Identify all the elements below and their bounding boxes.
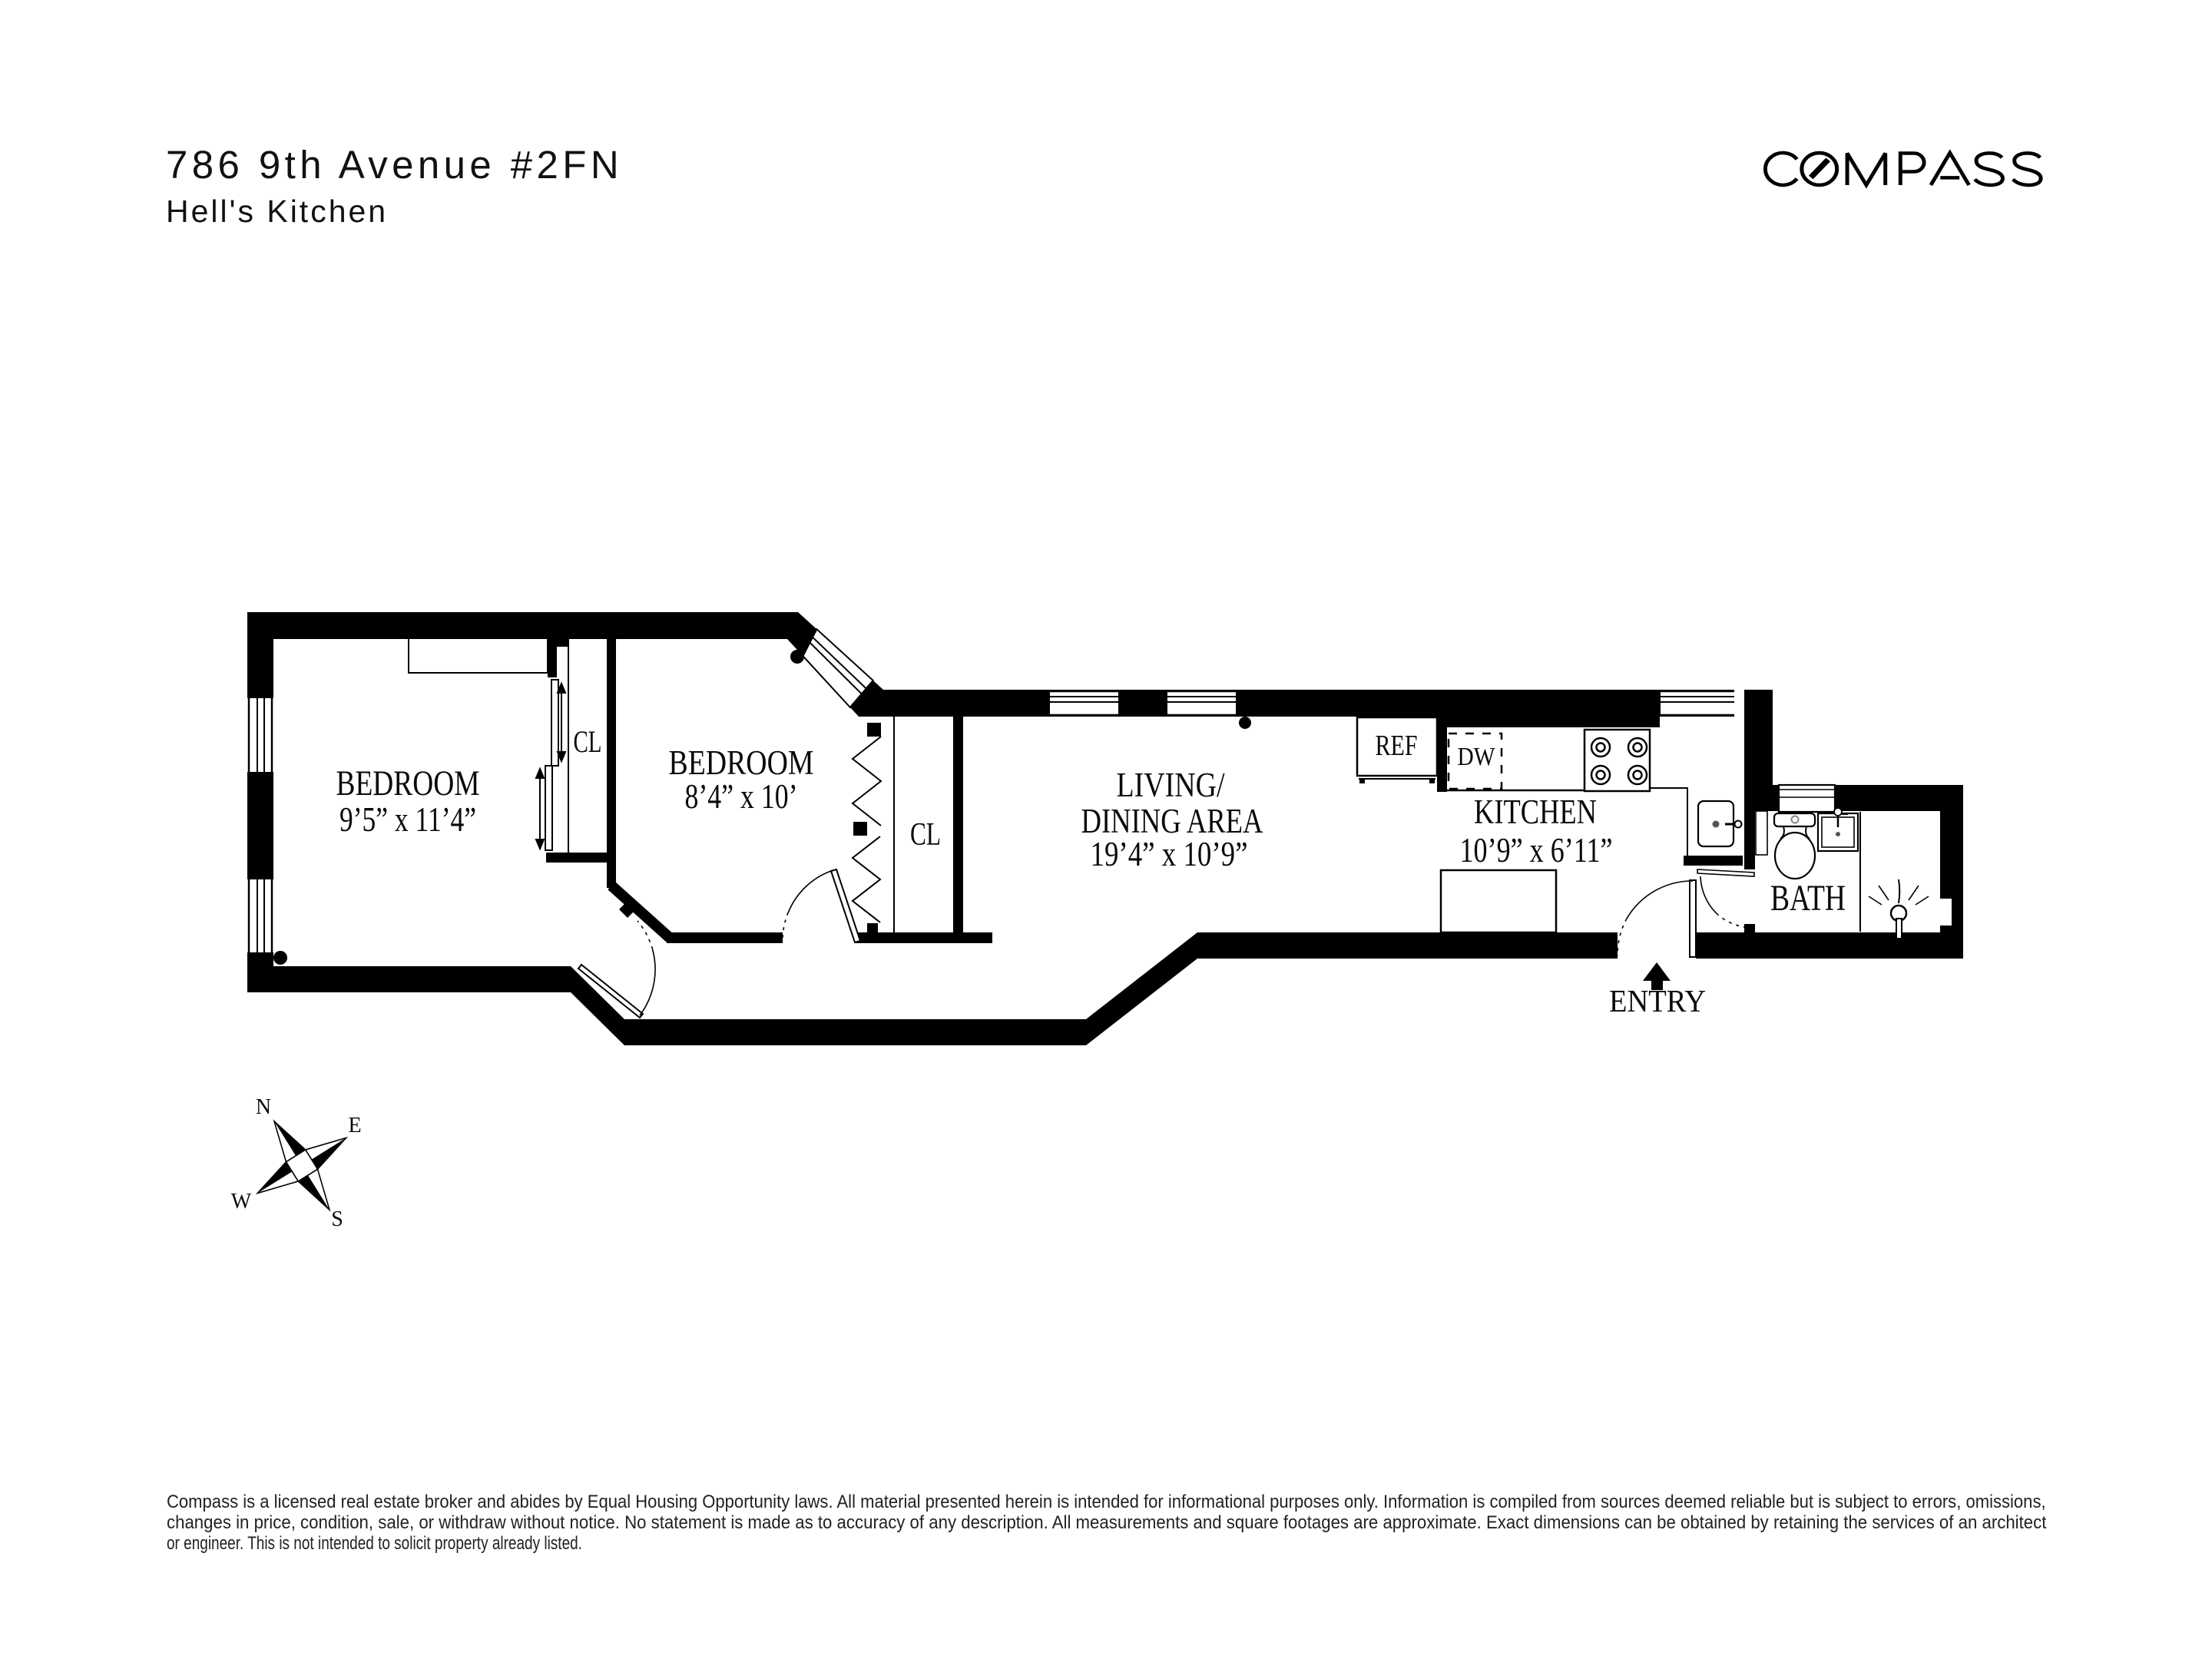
svg-text:DW: DW	[1458, 743, 1496, 771]
svg-text:LIVING/: LIVING/	[1117, 766, 1225, 804]
svg-text:W: W	[231, 1190, 252, 1214]
svg-text:CL: CL	[910, 817, 941, 853]
svg-text:BEDROOM: BEDROOM	[669, 743, 814, 782]
svg-text:CL: CL	[574, 724, 602, 759]
svg-text:BEDROOM: BEDROOM	[336, 763, 480, 803]
svg-text:19’4” x 10’9”: 19’4” x 10’9”	[1091, 835, 1248, 873]
svg-text:BATH: BATH	[1770, 878, 1846, 919]
svg-text:N: N	[256, 1095, 271, 1119]
svg-text:S: S	[331, 1207, 343, 1231]
svg-text:KITCHEN: KITCHEN	[1474, 793, 1597, 831]
svg-text:E: E	[348, 1114, 361, 1137]
svg-text:ENTRY: ENTRY	[1609, 983, 1706, 1018]
svg-text:REF: REF	[1376, 730, 1418, 762]
svg-text:9’5” x 11’4”: 9’5” x 11’4”	[339, 800, 476, 839]
svg-text:8’4” x 10’: 8’4” x 10’	[685, 777, 798, 816]
svg-text:10’9” x 6’11”: 10’9” x 6’11”	[1460, 831, 1613, 869]
